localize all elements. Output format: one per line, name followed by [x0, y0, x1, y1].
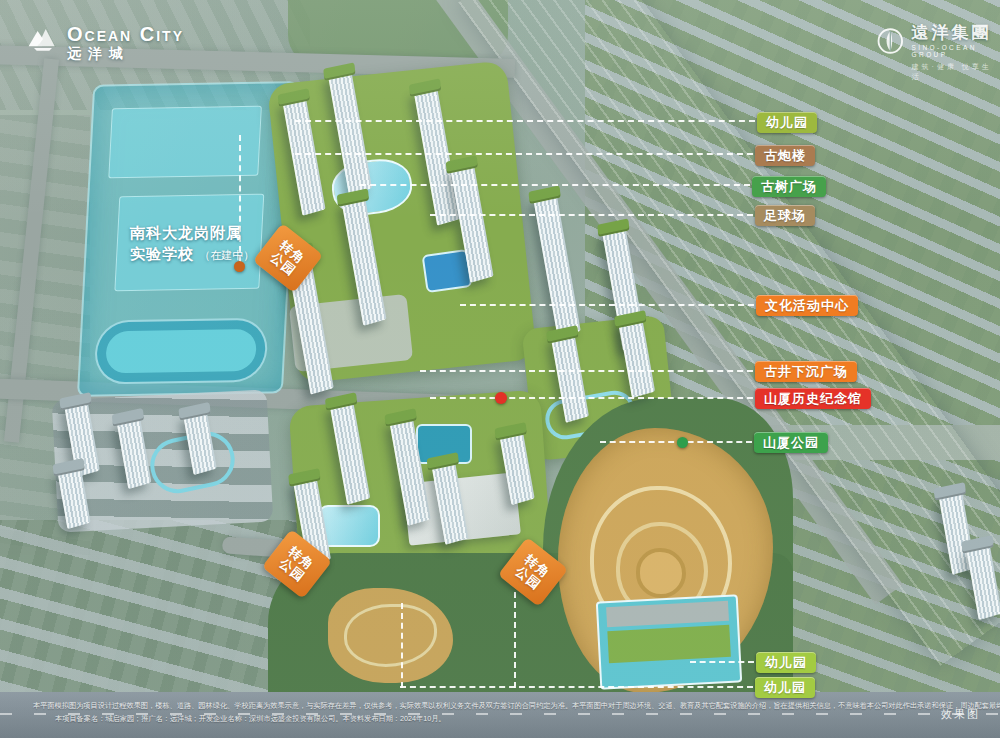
leader-line-gun-tower — [295, 153, 753, 155]
school-status: （在建中） — [199, 249, 254, 261]
callout-gun-tower: 古炮楼 — [755, 145, 815, 166]
school-name-line2: 实验学校 — [130, 245, 194, 262]
sino-ocean-name-en: SINO-OCEAN GROUP — [912, 44, 1000, 58]
ocean-city-logo-icon — [25, 24, 61, 54]
school-name-line1: 南科大龙岗附属 — [130, 222, 254, 243]
disclaimer-line2: 本项目备案名：城启家园；推广名：远洋城；开发企业名称：深圳市远盛金投资有限公司。… — [55, 714, 446, 724]
park-path-ring — [636, 548, 686, 598]
ocean-city-name-en: Ocean City — [67, 24, 184, 44]
sino-ocean-name-cn: 遠洋集團 — [912, 24, 1000, 42]
callout-kindergarten-1: 幼儿园 — [757, 112, 817, 133]
site-boundary-line — [401, 603, 403, 688]
sino-ocean-tagline: 建筑·健康 悦享生活 — [912, 62, 1000, 82]
leader-line-football — [430, 214, 753, 216]
running-track — [93, 318, 268, 385]
sino-ocean-logo-icon — [876, 24, 905, 58]
leader-line-kindergarten-2 — [690, 661, 754, 663]
ocean-city-name-cn: 远洋城 — [67, 45, 184, 63]
school-name-label: 南科大龙岗附属 实验学校 （在建中） — [130, 222, 254, 266]
kindergarten-compound — [596, 594, 742, 689]
memorial-marker-dot — [495, 392, 507, 404]
leader-line-kindergarten-1 — [295, 120, 755, 122]
callout-tree-plaza: 古树广场 — [752, 176, 826, 197]
disclaimer-line1: 本平面模拟图为项目设计过程效果图，楼栋、道路、园林绿化、学校距离为效果示意，与实… — [33, 701, 1000, 711]
rendering-watermark: 效果图 — [941, 707, 980, 722]
callout-shanxia-park: 山厦公园 — [754, 432, 828, 453]
leader-line-well-plaza — [420, 370, 753, 372]
leader-line-memorial — [430, 397, 753, 399]
callout-football-field: 足球场 — [755, 205, 815, 226]
masterplan-rendering: 幼儿园 古炮楼 古树广场 足球场 文化活动中心 古井下沉广场 山厦历史纪念馆 山… — [0, 0, 1000, 738]
compound-roof-green — [607, 625, 731, 663]
callout-kindergarten-3: 幼儿园 — [755, 677, 815, 698]
leader-line-shanxia-park — [600, 441, 752, 443]
callout-well-plaza: 古井下沉广场 — [755, 361, 857, 382]
compound-roof-gray — [606, 601, 729, 627]
park-marker-dot — [677, 437, 688, 448]
leader-line-corner-park-3 — [514, 592, 516, 688]
ocean-city-logo: Ocean City 远洋城 — [25, 24, 184, 63]
leader-line-tree-plaza — [360, 184, 750, 186]
leader-line-cultural-center — [460, 304, 754, 306]
callout-kindergarten-2: 幼儿园 — [756, 652, 816, 673]
leader-line-kindergarten-3 — [400, 686, 753, 688]
sino-ocean-logo: 遠洋集團 SINO-OCEAN GROUP 建筑·健康 悦享生活 — [876, 24, 1000, 82]
callout-memorial-hall: 山厦历史纪念馆 — [755, 388, 871, 409]
callout-cultural-center: 文化活动中心 — [756, 295, 858, 316]
